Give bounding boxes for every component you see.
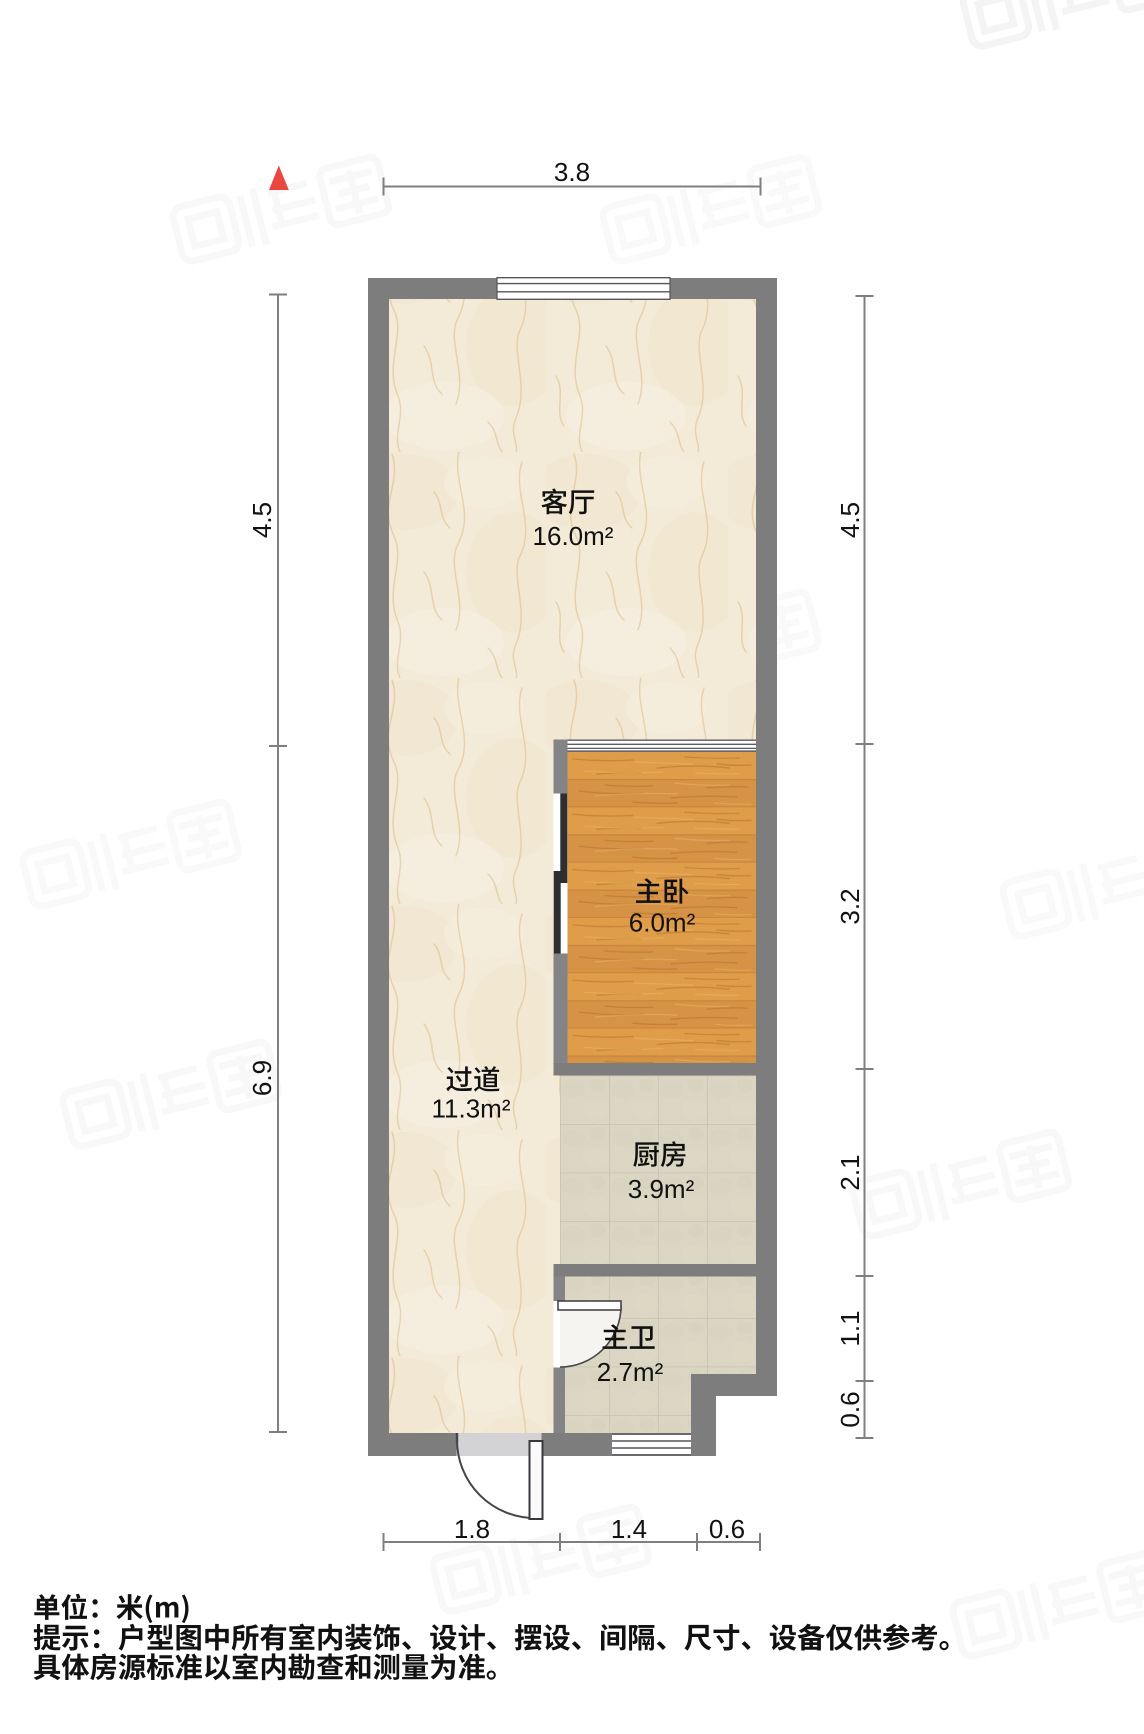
- svg-text:2.1: 2.1: [835, 1154, 865, 1190]
- svg-text:3.8: 3.8: [554, 157, 590, 187]
- svg-text:6.9: 6.9: [247, 1060, 277, 1096]
- svg-text:11.3m²: 11.3m²: [432, 1094, 511, 1124]
- svg-text:1.1: 1.1: [835, 1310, 865, 1346]
- svg-text:4.5: 4.5: [835, 502, 865, 538]
- svg-text:1.4: 1.4: [611, 1514, 647, 1544]
- svg-text:6.0m²: 6.0m²: [629, 908, 696, 938]
- svg-text:3.2: 3.2: [835, 888, 865, 924]
- svg-text:4.5: 4.5: [247, 502, 277, 538]
- svg-text:2.7m²: 2.7m²: [597, 1357, 664, 1387]
- svg-text:16.0m²: 16.0m²: [533, 521, 614, 551]
- svg-text:0.6: 0.6: [835, 1391, 865, 1427]
- svg-text:0.6: 0.6: [709, 1514, 745, 1544]
- svg-text:3.9m²: 3.9m²: [628, 1174, 695, 1204]
- svg-text:1.8: 1.8: [454, 1514, 490, 1544]
